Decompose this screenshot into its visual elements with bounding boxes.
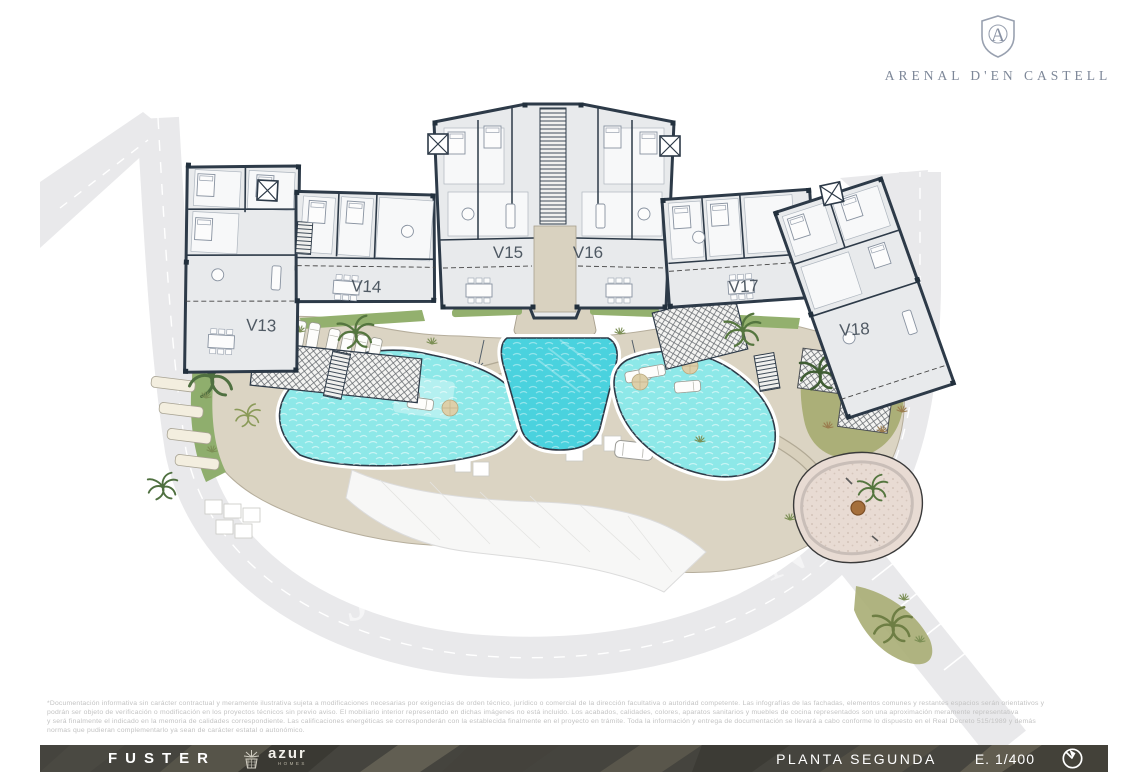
developer-logo: FUSTER — [108, 750, 216, 767]
unit-label-v14: V14 — [351, 276, 382, 297]
unit-label-v17: V17 — [728, 276, 759, 297]
site-plan-svg: JON ON — [0, 0, 1146, 774]
unit-label-v18: V18 — [839, 319, 871, 340]
site-plan: JON ON — [0, 0, 1146, 774]
floor-label: PLANTA SEGUNDA — [776, 751, 937, 767]
brochure-page: JON ON — [0, 0, 1146, 774]
watermark-text-left: JON — [339, 541, 504, 635]
agency-emblem-icon — [242, 748, 261, 769]
unit-label-v13: V13 — [246, 315, 277, 335]
playground — [794, 452, 923, 562]
brand-shield-icon: A — [979, 14, 1017, 60]
disclaimer-line: normas que pudieran complementarlo ya se… — [47, 726, 1105, 735]
agency-name: azur — [268, 749, 307, 759]
disclaimer-line: *Documentación informativa sin carácter … — [47, 699, 1105, 708]
north-compass-icon — [1061, 747, 1084, 770]
building-v13 — [175, 159, 309, 380]
unit-label-v15: V15 — [493, 243, 523, 262]
disclaimer: *Documentación informativa sin carácter … — [47, 699, 1105, 735]
unit-label-v16: V16 — [573, 243, 603, 262]
brand-name: ARENAL D'EN CASTELL — [878, 68, 1118, 84]
disclaimer-line: y será finalmente el indicado en la memo… — [47, 717, 1105, 726]
agency-logo: azur HOMES — [242, 748, 307, 769]
brand-monogram: A — [991, 25, 1005, 46]
center-pool — [501, 338, 617, 450]
scale-label: E. 1/400 — [975, 751, 1035, 767]
footer-bar: FUSTER azur HOMES PLANTA SEGUNDA E. 1/40… — [40, 745, 1108, 772]
brand-header: A ARENAL D'EN CASTELL — [878, 14, 1118, 84]
building-v15-v16 — [433, 103, 676, 319]
disclaimer-line: podrán ser objeto de verificación o modi… — [47, 708, 1105, 717]
